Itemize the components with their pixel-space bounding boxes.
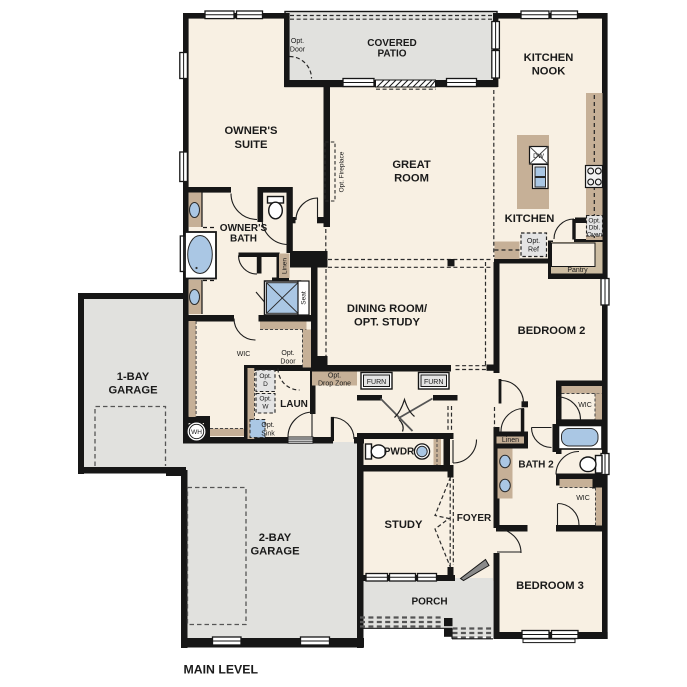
svg-text:1-BAY: 1-BAY <box>117 371 150 383</box>
svg-text:Opt.: Opt. <box>281 350 294 357</box>
svg-text:PATIO: PATIO <box>377 49 406 60</box>
svg-text:Opt. Fireplace: Opt. Fireplace <box>339 151 346 192</box>
svg-text:GREAT: GREAT <box>392 159 430 171</box>
svg-text:OWNER'S: OWNER'S <box>220 223 268 234</box>
svg-text:FOYER: FOYER <box>457 513 492 524</box>
svg-text:Opt.: Opt. <box>588 218 600 225</box>
svg-text:Linen: Linen <box>282 258 289 274</box>
svg-text:Oven: Oven <box>587 232 603 239</box>
svg-text:KITCHEN: KITCHEN <box>505 213 555 225</box>
svg-text:W: W <box>262 404 269 411</box>
svg-text:Drop Zone: Drop Zone <box>318 381 351 388</box>
svg-text:DW: DW <box>533 153 545 160</box>
svg-text:2-BAY: 2-BAY <box>259 532 292 544</box>
svg-text:LAUN: LAUN <box>280 399 308 410</box>
svg-text:WH: WH <box>191 429 202 436</box>
svg-text:FURN: FURN <box>424 379 443 386</box>
svg-text:BEDROOM 3: BEDROOM 3 <box>516 580 584 592</box>
svg-text:Opt.: Opt. <box>259 373 271 380</box>
svg-text:DINING ROOM/: DINING ROOM/ <box>347 303 427 315</box>
svg-text:Door: Door <box>280 359 296 366</box>
svg-text:Ref: Ref <box>528 247 539 254</box>
svg-text:BATH 2: BATH 2 <box>518 460 554 471</box>
svg-text:Opt.: Opt. <box>527 238 540 245</box>
svg-text:BEDROOM 2: BEDROOM 2 <box>518 325 586 337</box>
svg-text:MAIN LEVEL: MAIN LEVEL <box>184 663 259 677</box>
svg-text:Seat: Seat <box>301 291 308 305</box>
svg-text:WIC: WIC <box>237 351 251 358</box>
svg-text:ROOM: ROOM <box>394 173 429 185</box>
svg-text:BATH: BATH <box>230 234 257 245</box>
svg-text:WIC: WIC <box>578 402 592 409</box>
svg-text:Dbl.: Dbl. <box>589 225 601 232</box>
svg-text:PORCH: PORCH <box>411 597 447 608</box>
svg-text:Door: Door <box>290 47 306 54</box>
svg-text:KITCHEN: KITCHEN <box>524 52 574 64</box>
svg-text:Opt.: Opt. <box>328 373 341 380</box>
svg-text:Linen: Linen <box>502 437 519 444</box>
svg-text:NOOK: NOOK <box>532 66 566 78</box>
svg-text:GARAGE: GARAGE <box>108 385 158 397</box>
svg-text:SUITE: SUITE <box>235 139 268 151</box>
svg-text:OPT. STUDY: OPT. STUDY <box>354 317 420 329</box>
svg-text:Sink: Sink <box>261 431 275 438</box>
svg-text:WIC: WIC <box>576 495 590 502</box>
svg-text:PWDR: PWDR <box>384 447 415 458</box>
svg-text:COVERED: COVERED <box>367 38 416 49</box>
svg-text:D: D <box>263 381 268 388</box>
svg-text:FURN: FURN <box>367 379 386 386</box>
svg-text:OWNER'S: OWNER'S <box>224 125 278 137</box>
svg-text:Opt.: Opt. <box>261 422 274 429</box>
svg-text:STUDY: STUDY <box>385 519 423 531</box>
svg-text:Pantry: Pantry <box>567 267 588 274</box>
svg-text:GARAGE: GARAGE <box>250 546 300 558</box>
svg-text:Opt.: Opt. <box>259 396 271 403</box>
svg-text:Opt.: Opt. <box>291 38 304 45</box>
